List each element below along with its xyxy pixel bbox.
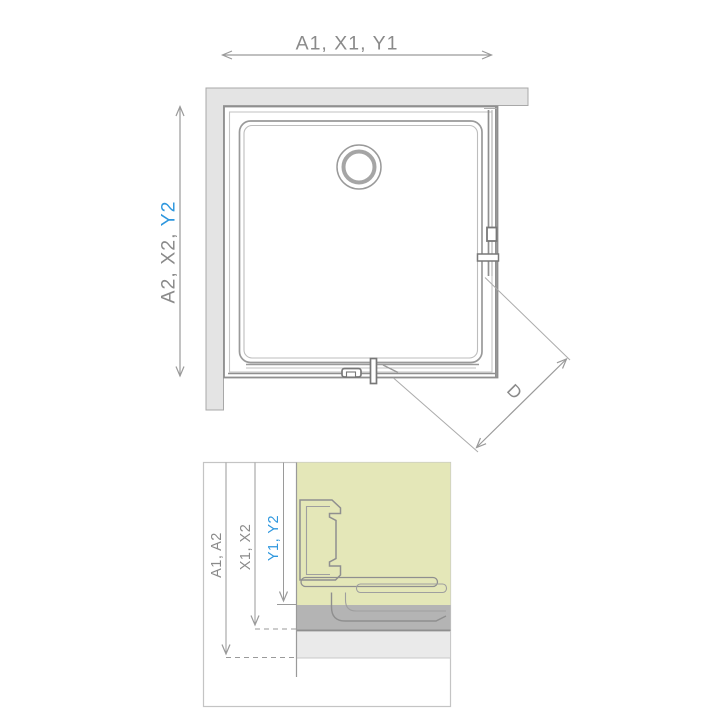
door-guide-post xyxy=(371,359,377,384)
detail-dimension-inner-label: Y1, Y2 xyxy=(267,515,282,561)
door-handle-inner xyxy=(347,372,356,377)
door-clamp-bracket xyxy=(478,254,499,261)
depth-dimension-label: A2, X2, Y2 xyxy=(159,201,179,304)
detail-view-drawing xyxy=(204,463,451,707)
tray-band-dark xyxy=(297,605,451,630)
detail-dimension-outer-label: A1, A2 xyxy=(210,532,225,578)
depth-dimension-label-blue: Y2 xyxy=(157,201,179,227)
extension-line-track xyxy=(394,378,479,452)
floor-band-light xyxy=(297,632,451,659)
shower-enclosure-diagram: A1, X1, Y1 A2, X2, Y2 D A1, A2 X1, X2 Y1… xyxy=(0,0,720,720)
detail-dimension-middle-label: X1, X2 xyxy=(239,524,254,571)
depth-dimension-label-gray: A2, X2, xyxy=(157,226,179,303)
width-dimension-label: A1, X1, Y1 xyxy=(296,34,399,54)
door-hinge-bracket xyxy=(487,228,497,242)
diagram-linework xyxy=(0,0,720,720)
